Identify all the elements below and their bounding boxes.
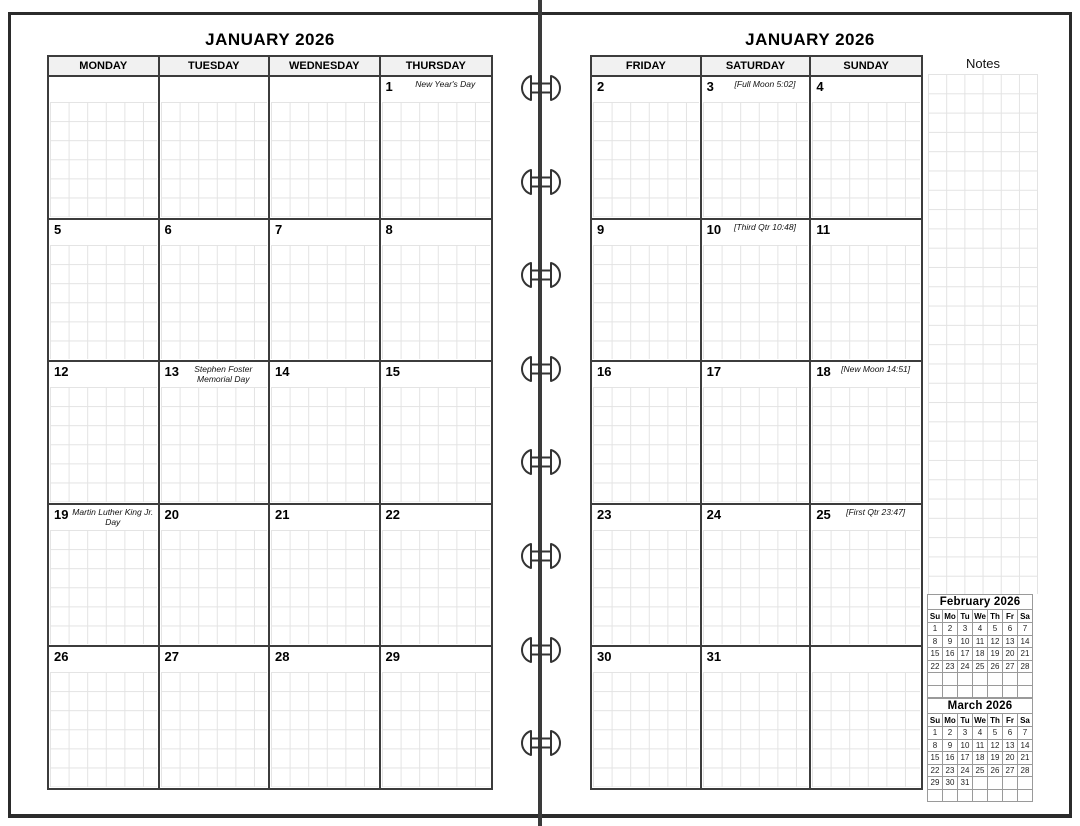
day-number: 30 xyxy=(597,649,611,664)
mini-day-empty xyxy=(928,685,943,698)
day-cell-7[interactable]: 7 xyxy=(270,218,381,361)
day-cell-11[interactable]: 11 xyxy=(811,218,921,361)
mini-day-23[interactable]: 23 xyxy=(943,764,958,777)
day-cell-14[interactable]: 14 xyxy=(270,360,381,503)
day-cell-empty[interactable] xyxy=(160,75,271,218)
day-number: 25 xyxy=(816,507,830,522)
mini-day-25[interactable]: 25 xyxy=(973,660,988,673)
cell-grid xyxy=(50,387,157,502)
right-page-title: JANUARY 2026 xyxy=(590,30,1030,52)
cell-grid xyxy=(161,102,268,217)
mini-day-empty xyxy=(973,673,988,686)
mini-day-header: Sa xyxy=(1018,610,1033,623)
day-cell-28[interactable]: 28 xyxy=(270,645,381,788)
mini-day-21[interactable]: 21 xyxy=(1018,752,1033,765)
day-cell-24[interactable]: 24 xyxy=(702,503,812,646)
day-number: 8 xyxy=(386,222,393,237)
mini-day-header: We xyxy=(973,610,988,623)
mini-day-25[interactable]: 25 xyxy=(973,764,988,777)
mini-day-12[interactable]: 12 xyxy=(988,635,1003,648)
cell-grid xyxy=(161,672,268,787)
day-note: [New Moon 14:51] xyxy=(833,365,918,375)
mini-day-7[interactable]: 7 xyxy=(1018,623,1033,636)
mini-day-empty xyxy=(988,789,1003,802)
mini-day-13[interactable]: 13 xyxy=(1003,739,1018,752)
day-header-saturday: SATURDAY xyxy=(702,57,812,75)
mini-day-3[interactable]: 3 xyxy=(958,623,973,636)
day-cell-20[interactable]: 20 xyxy=(160,503,271,646)
mini-day-10[interactable]: 10 xyxy=(958,739,973,752)
day-cell-26[interactable]: 26 xyxy=(49,645,160,788)
day-number: 5 xyxy=(54,222,61,237)
day-cell-16[interactable]: 16 xyxy=(592,360,702,503)
day-number: 14 xyxy=(275,364,289,379)
cell-grid xyxy=(50,530,157,645)
mini-day-27[interactable]: 27 xyxy=(1003,764,1018,777)
mini-day-empty xyxy=(943,685,958,698)
day-number: 1 xyxy=(386,79,393,94)
mini-day-empty xyxy=(958,685,973,698)
mini-day-empty xyxy=(988,685,1003,698)
day-number: 21 xyxy=(275,507,289,522)
mini-day-28[interactable]: 28 xyxy=(1018,660,1033,673)
mini-day-empty xyxy=(1003,777,1018,790)
binder-ring-icon xyxy=(508,448,574,476)
day-cell-6[interactable]: 6 xyxy=(160,218,271,361)
mini-day-3[interactable]: 3 xyxy=(958,727,973,740)
mini-day-empty xyxy=(973,777,988,790)
mini-day-15[interactable]: 15 xyxy=(928,648,943,661)
cell-grid xyxy=(593,387,699,502)
day-cell-empty[interactable] xyxy=(49,75,160,218)
day-number: 28 xyxy=(275,649,289,664)
mini-day-header: Fr xyxy=(1003,610,1018,623)
mini-day-1[interactable]: 1 xyxy=(928,727,943,740)
day-cell-10[interactable]: 10[Third Qtr 10:48] xyxy=(702,218,812,361)
mini-day-30[interactable]: 30 xyxy=(943,777,958,790)
day-note: New Year's Day xyxy=(403,80,489,90)
day-note: Martin Luther King Jr. Day xyxy=(71,508,155,528)
mini-day-empty xyxy=(928,673,943,686)
day-cell-23[interactable]: 23 xyxy=(592,503,702,646)
mini-day-5[interactable]: 5 xyxy=(988,727,1003,740)
cell-grid xyxy=(812,245,920,360)
mini-day-empty xyxy=(1003,685,1018,698)
day-cell-12[interactable]: 12 xyxy=(49,360,160,503)
mini-day-19[interactable]: 19 xyxy=(988,648,1003,661)
mini-day-27[interactable]: 27 xyxy=(1003,660,1018,673)
cell-grid xyxy=(812,530,920,645)
day-number: 20 xyxy=(165,507,179,522)
binder-ring-icon xyxy=(508,168,574,196)
mini-day-empty xyxy=(1018,789,1033,802)
mini-day-8[interactable]: 8 xyxy=(928,635,943,648)
day-number: 22 xyxy=(386,507,400,522)
day-cell-5[interactable]: 5 xyxy=(49,218,160,361)
mini-day-4[interactable]: 4 xyxy=(973,623,988,636)
day-note: Stephen Foster Memorial Day xyxy=(182,365,266,385)
day-header-thursday: THURSDAY xyxy=(381,57,492,75)
day-number: 4 xyxy=(816,79,823,94)
cell-grid xyxy=(593,102,699,217)
day-cell-21[interactable]: 21 xyxy=(270,503,381,646)
cell-grid xyxy=(382,387,491,502)
mini-day-7[interactable]: 7 xyxy=(1018,727,1033,740)
mini-day-empty xyxy=(988,673,1003,686)
mini-day-20[interactable]: 20 xyxy=(1003,752,1018,765)
mini-day-header: Tu xyxy=(958,714,973,727)
day-cell-31[interactable]: 31 xyxy=(702,645,812,788)
cell-grid xyxy=(382,530,491,645)
mini-day-header: Th xyxy=(988,714,1003,727)
day-cell-9[interactable]: 9 xyxy=(592,218,702,361)
day-number: 26 xyxy=(54,649,68,664)
binder-ring-icon xyxy=(508,729,574,757)
binder-ring-icon xyxy=(508,74,574,102)
cell-grid xyxy=(593,245,699,360)
cell-grid xyxy=(161,530,268,645)
mini-day-empty xyxy=(988,777,1003,790)
day-number: 11 xyxy=(816,222,830,237)
cell-grid xyxy=(50,102,157,217)
cell-grid xyxy=(382,672,491,787)
day-note: [Full Moon 5:02] xyxy=(724,80,807,90)
mini-day-1[interactable]: 1 xyxy=(928,623,943,636)
day-number: 10 xyxy=(707,222,721,237)
mini-day-header: Su xyxy=(928,610,943,623)
mini-day-13[interactable]: 13 xyxy=(1003,635,1018,648)
cell-grid xyxy=(593,672,699,787)
day-note: [Third Qtr 10:48] xyxy=(724,223,807,233)
left-calendar-table: MONDAYTUESDAYWEDNESDAYTHURSDAY1New Year'… xyxy=(47,55,493,790)
day-number: 18 xyxy=(816,364,830,379)
mini-day-22[interactable]: 22 xyxy=(928,764,943,777)
day-cell-25[interactable]: 25[First Qtr 23:47] xyxy=(811,503,921,646)
cell-grid xyxy=(271,530,378,645)
left-page-title: JANUARY 2026 xyxy=(47,30,493,52)
cell-grid xyxy=(593,530,699,645)
day-header-friday: FRIDAY xyxy=(592,57,702,75)
mini-day-empty xyxy=(1003,673,1018,686)
day-number: 29 xyxy=(386,649,400,664)
mini-day-21[interactable]: 21 xyxy=(1018,648,1033,661)
mini-day-14[interactable]: 14 xyxy=(1018,635,1033,648)
day-number: 24 xyxy=(707,507,721,522)
mini-day-empty xyxy=(1018,685,1033,698)
mini-day-11[interactable]: 11 xyxy=(973,739,988,752)
mini-day-14[interactable]: 14 xyxy=(1018,739,1033,752)
day-cell-3[interactable]: 3[Full Moon 5:02] xyxy=(702,75,812,218)
mini-day-26[interactable]: 26 xyxy=(988,764,1003,777)
mini-day-6[interactable]: 6 xyxy=(1003,727,1018,740)
binder-ring-icon xyxy=(508,542,574,570)
planner-spread: JANUARY 2026 MONDAYTUESDAYWEDNESDAYTHURS… xyxy=(0,0,1080,826)
mini-day-header: Th xyxy=(988,610,1003,623)
day-cell-2[interactable]: 2 xyxy=(592,75,702,218)
day-number: 6 xyxy=(165,222,172,237)
mini-day-16[interactable]: 16 xyxy=(943,648,958,661)
mini-day-header: Sa xyxy=(1018,714,1033,727)
mini-day-19[interactable]: 19 xyxy=(988,752,1003,765)
binder-ring-icon xyxy=(508,636,574,664)
mini-day-10[interactable]: 10 xyxy=(958,635,973,648)
mini-day-header: We xyxy=(973,714,988,727)
mini-day-26[interactable]: 26 xyxy=(988,660,1003,673)
day-number: 9 xyxy=(597,222,604,237)
day-number: 19 xyxy=(54,507,68,522)
mini-calendar-march-2026: March 2026SuMoTuWeThFrSa1234567891011121… xyxy=(927,698,1033,802)
mini-day-header: Mo xyxy=(943,610,958,623)
day-number: 3 xyxy=(707,79,714,94)
mini-day-17[interactable]: 17 xyxy=(958,648,973,661)
day-cell-17[interactable]: 17 xyxy=(702,360,812,503)
day-header-sunday: SUNDAY xyxy=(811,57,921,75)
mini-day-24[interactable]: 24 xyxy=(958,660,973,673)
mini-day-28[interactable]: 28 xyxy=(1018,764,1033,777)
mini-day-4[interactable]: 4 xyxy=(973,727,988,740)
day-number: 13 xyxy=(165,364,179,379)
cell-grid xyxy=(703,102,809,217)
mini-day-empty xyxy=(943,673,958,686)
mini-calendar-title: February 2026 xyxy=(928,595,1033,610)
cell-grid xyxy=(271,102,378,217)
mini-day-empty xyxy=(973,685,988,698)
mini-day-31[interactable]: 31 xyxy=(958,777,973,790)
cell-grid xyxy=(703,387,809,502)
day-number: 17 xyxy=(707,364,721,379)
notes-label: Notes xyxy=(928,56,1038,71)
cell-grid xyxy=(703,245,809,360)
day-header-monday: MONDAY xyxy=(49,57,160,75)
mini-day-empty xyxy=(928,789,943,802)
mini-day-empty xyxy=(973,789,988,802)
day-cell-22[interactable]: 22 xyxy=(381,503,492,646)
mini-day-6[interactable]: 6 xyxy=(1003,623,1018,636)
mini-day-empty xyxy=(1018,777,1033,790)
mini-day-16[interactable]: 16 xyxy=(943,752,958,765)
mini-day-29[interactable]: 29 xyxy=(928,777,943,790)
day-cell-18[interactable]: 18[New Moon 14:51] xyxy=(811,360,921,503)
mini-day-header: Su xyxy=(928,714,943,727)
mini-calendar-february-2026: February 2026SuMoTuWeThFrSa1234567891011… xyxy=(927,594,1033,698)
mini-day-8[interactable]: 8 xyxy=(928,739,943,752)
mini-day-header: Fr xyxy=(1003,714,1018,727)
day-cell-29[interactable]: 29 xyxy=(381,645,492,788)
day-cell-4[interactable]: 4 xyxy=(811,75,921,218)
notes-grid[interactable] xyxy=(928,74,1038,594)
day-cell-19[interactable]: 19Martin Luther King Jr. Day xyxy=(49,503,160,646)
mini-day-18[interactable]: 18 xyxy=(973,648,988,661)
day-number: 23 xyxy=(597,507,611,522)
day-number: 16 xyxy=(597,364,611,379)
day-number: 7 xyxy=(275,222,282,237)
mini-day-18[interactable]: 18 xyxy=(973,752,988,765)
cell-grid xyxy=(703,530,809,645)
cell-grid xyxy=(161,245,268,360)
day-number: 2 xyxy=(597,79,604,94)
mini-day-17[interactable]: 17 xyxy=(958,752,973,765)
mini-day-empty xyxy=(943,789,958,802)
mini-day-5[interactable]: 5 xyxy=(988,623,1003,636)
mini-day-22[interactable]: 22 xyxy=(928,660,943,673)
mini-day-empty xyxy=(958,789,973,802)
day-cell-13[interactable]: 13Stephen Foster Memorial Day xyxy=(160,360,271,503)
cell-grid xyxy=(271,245,378,360)
mini-day-11[interactable]: 11 xyxy=(973,635,988,648)
day-note: [First Qtr 23:47] xyxy=(833,508,918,518)
mini-day-header: Tu xyxy=(958,610,973,623)
day-cell-empty[interactable] xyxy=(811,645,921,788)
right-calendar-table: FRIDAYSATURDAYSUNDAY23[Full Moon 5:02]49… xyxy=(590,55,923,790)
day-cell-15[interactable]: 15 xyxy=(381,360,492,503)
day-cell-empty[interactable] xyxy=(270,75,381,218)
day-cell-1[interactable]: 1New Year's Day xyxy=(381,75,492,218)
cell-grid xyxy=(271,387,378,502)
mini-day-2[interactable]: 2 xyxy=(943,623,958,636)
cell-grid xyxy=(50,672,157,787)
cell-grid xyxy=(812,387,920,502)
mini-day-23[interactable]: 23 xyxy=(943,660,958,673)
mini-day-9[interactable]: 9 xyxy=(943,635,958,648)
cell-grid xyxy=(50,245,157,360)
day-header-wednesday: WEDNESDAY xyxy=(270,57,381,75)
day-cell-27[interactable]: 27 xyxy=(160,645,271,788)
mini-day-empty xyxy=(1003,789,1018,802)
binder-ring-icon xyxy=(508,261,574,289)
mini-day-12[interactable]: 12 xyxy=(988,739,1003,752)
cell-grid xyxy=(382,102,491,217)
cell-grid xyxy=(382,245,491,360)
binder-ring-icon xyxy=(508,355,574,383)
day-cell-8[interactable]: 8 xyxy=(381,218,492,361)
cell-grid xyxy=(812,672,920,787)
day-number: 31 xyxy=(707,649,721,664)
cell-grid xyxy=(703,672,809,787)
mini-day-empty xyxy=(1018,673,1033,686)
mini-calendars: February 2026SuMoTuWeThFrSa1234567891011… xyxy=(927,594,1035,802)
mini-day-20[interactable]: 20 xyxy=(1003,648,1018,661)
mini-day-header: Mo xyxy=(943,714,958,727)
day-number: 12 xyxy=(54,364,68,379)
mini-day-9[interactable]: 9 xyxy=(943,739,958,752)
mini-day-2[interactable]: 2 xyxy=(943,727,958,740)
cell-grid xyxy=(812,102,920,217)
mini-day-15[interactable]: 15 xyxy=(928,752,943,765)
mini-calendar-title: March 2026 xyxy=(928,699,1033,714)
cell-grid xyxy=(161,387,268,502)
day-number: 15 xyxy=(386,364,400,379)
binder-spine xyxy=(538,0,542,826)
day-number: 27 xyxy=(165,649,179,664)
mini-day-empty xyxy=(958,673,973,686)
mini-day-24[interactable]: 24 xyxy=(958,764,973,777)
cell-grid xyxy=(271,672,378,787)
day-cell-30[interactable]: 30 xyxy=(592,645,702,788)
day-header-tuesday: TUESDAY xyxy=(160,57,271,75)
